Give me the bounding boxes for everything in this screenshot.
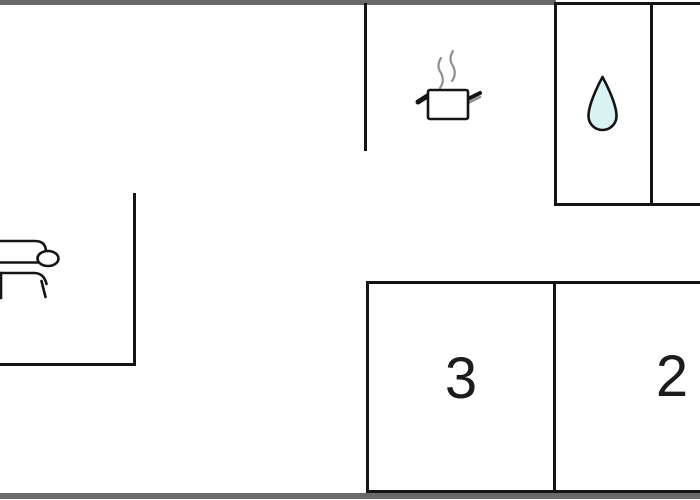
sofa-base <box>0 273 47 284</box>
wall-room3-left <box>366 281 369 493</box>
wall-bathroom-divider <box>650 2 653 206</box>
exterior-wall-top <box>0 0 556 5</box>
room-label-2: 2 <box>632 346 700 408</box>
wall-bathroom-top <box>554 2 700 5</box>
wall-bathroom-left <box>554 2 557 206</box>
cooking-pot-icon <box>410 45 490 125</box>
steam-line-left <box>439 58 443 88</box>
sofa-armrest <box>38 251 59 266</box>
pot-body <box>428 90 468 119</box>
exterior-wall-bottom <box>0 493 700 499</box>
wall-living-right <box>133 193 136 366</box>
steam-line-right <box>451 51 455 81</box>
wall-bedrooms-divider <box>553 281 556 493</box>
floor-plan: 3 2 <box>0 0 700 500</box>
wall-bedrooms-bottom <box>366 490 700 493</box>
room-label-3: 3 <box>421 348 501 410</box>
sofa-icon <box>0 228 70 303</box>
wall-living-bottom <box>0 363 136 366</box>
wall-bedrooms-top <box>366 281 700 284</box>
water-drop-icon <box>580 70 626 136</box>
sofa-front-leg <box>42 281 46 297</box>
wall-kitchen-divider <box>364 3 367 151</box>
wall-bathroom-bottom <box>554 203 700 206</box>
water-drop-shape <box>589 77 617 130</box>
